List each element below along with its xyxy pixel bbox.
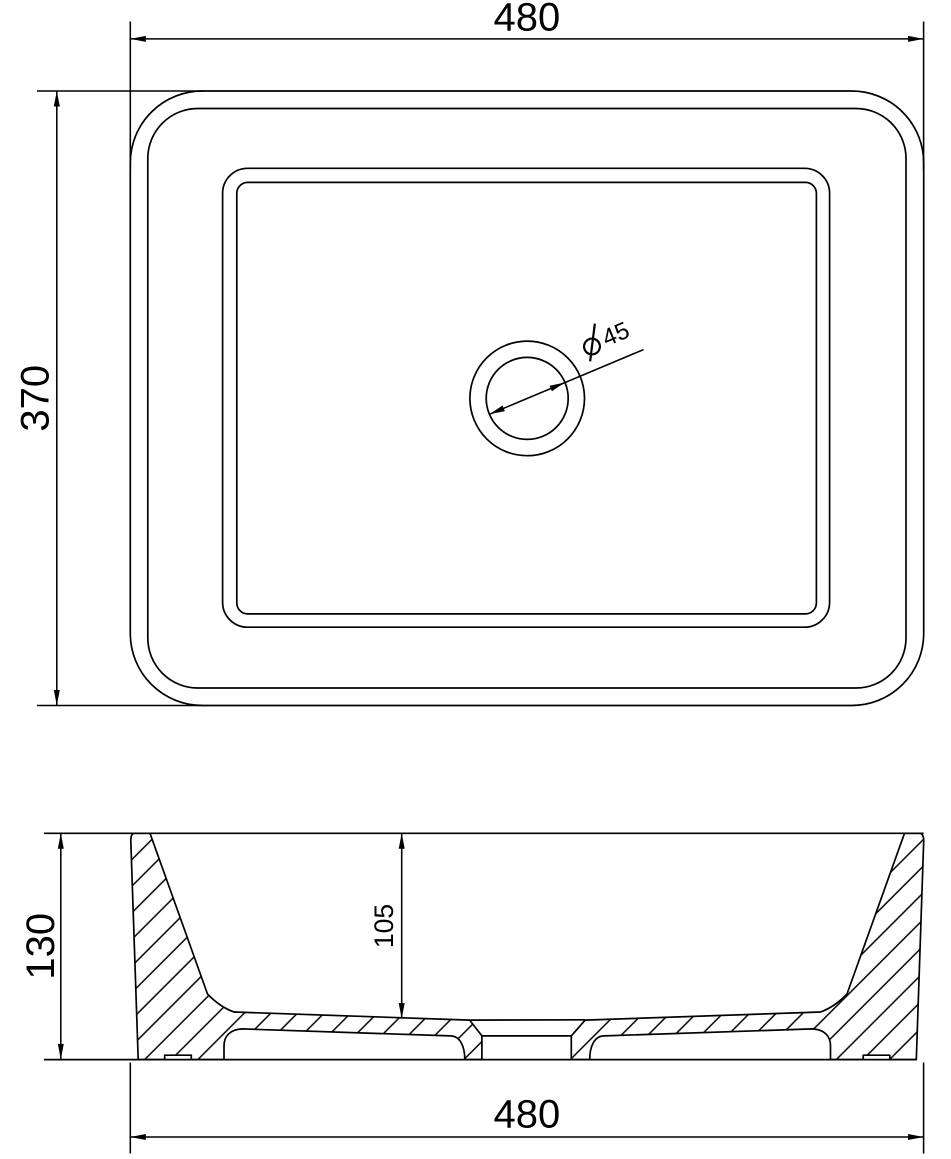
svg-text:370: 370 [13, 365, 57, 432]
svg-text:480: 480 [494, 0, 561, 39]
svg-text:130: 130 [19, 913, 63, 980]
svg-text:480: 480 [494, 1093, 561, 1137]
svg-text:45: 45 [598, 317, 633, 352]
svg-text:105: 105 [369, 904, 399, 948]
